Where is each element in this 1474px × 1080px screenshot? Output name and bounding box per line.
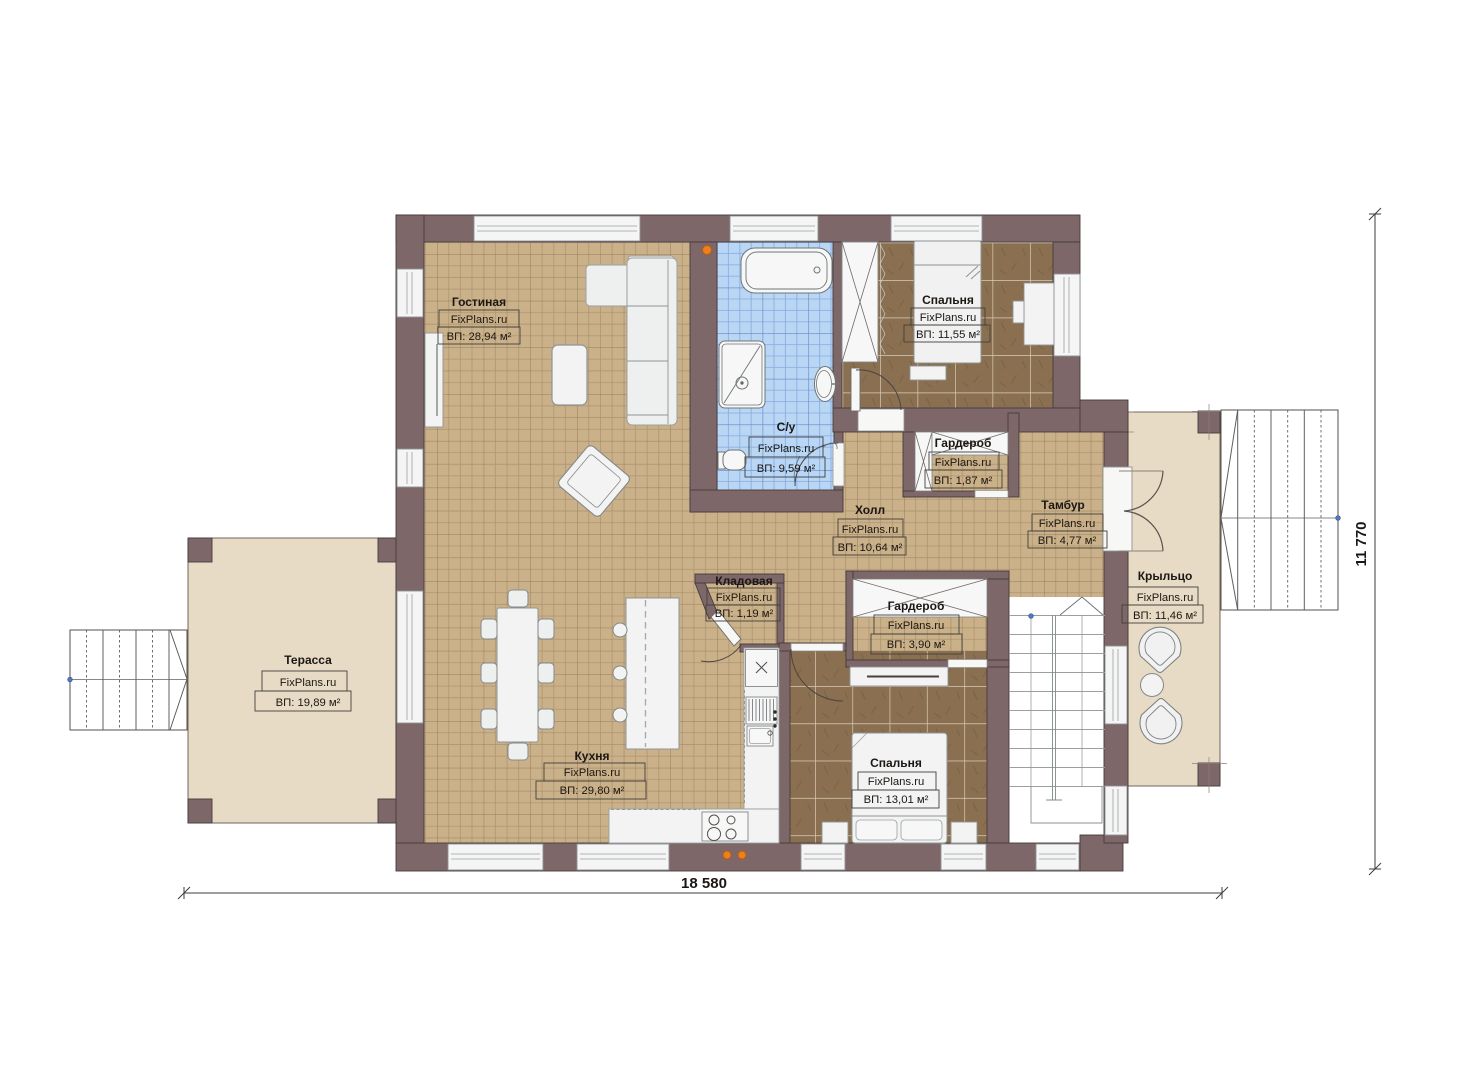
svg-text:Терасса: Терасса [284, 653, 332, 667]
svg-text:FixPlans.ru: FixPlans.ru [920, 312, 977, 324]
svg-text:FixPlans.ru: FixPlans.ru [716, 592, 773, 604]
svg-text:FixPlans.ru: FixPlans.ru [1137, 592, 1194, 604]
svg-text:FixPlans.ru: FixPlans.ru [868, 776, 925, 788]
svg-text:Гардероб: Гардероб [935, 436, 992, 450]
svg-text:FixPlans.ru: FixPlans.ru [1039, 518, 1096, 530]
svg-text:FixPlans.ru: FixPlans.ru [280, 677, 337, 689]
svg-text:Кладовая: Кладовая [715, 574, 772, 588]
svg-text:ВП: 13,01 м²: ВП: 13,01 м² [864, 794, 929, 806]
svg-text:Крыльцо: Крыльцо [1138, 569, 1193, 583]
svg-text:ВП: 1,19 м²: ВП: 1,19 м² [715, 608, 774, 620]
svg-text:ВП: 4,77 м²: ВП: 4,77 м² [1038, 535, 1097, 547]
svg-text:ВП: 19,89 м²: ВП: 19,89 м² [276, 697, 341, 709]
svg-text:FixPlans.ru: FixPlans.ru [564, 767, 621, 779]
svg-text:Кухня: Кухня [574, 749, 609, 763]
svg-text:FixPlans.ru: FixPlans.ru [842, 524, 899, 536]
svg-text:ВП: 1,87 м²: ВП: 1,87 м² [934, 475, 993, 487]
svg-text:FixPlans.ru: FixPlans.ru [888, 620, 945, 632]
svg-text:Гардероб: Гардероб [888, 599, 945, 613]
svg-text:ВП: 10,64 м²: ВП: 10,64 м² [838, 542, 903, 554]
svg-text:ВП: 3,90 м²: ВП: 3,90 м² [887, 639, 946, 651]
svg-text:ВП: 11,55 м²: ВП: 11,55 м² [916, 329, 980, 341]
svg-text:Спальня: Спальня [922, 293, 974, 307]
svg-text:ВП: 28,94 м²: ВП: 28,94 м² [447, 331, 512, 343]
svg-text:11 770: 11 770 [1353, 521, 1370, 566]
svg-text:ВП: 11,46 м²: ВП: 11,46 м² [1133, 610, 1197, 622]
svg-text:Холл: Холл [855, 503, 885, 517]
svg-text:С/у: С/у [777, 420, 796, 434]
svg-text:Тамбур: Тамбур [1041, 498, 1085, 512]
svg-text:18 580: 18 580 [681, 875, 727, 892]
svg-text:ВП: 9,59 м²: ВП: 9,59 м² [757, 463, 816, 475]
svg-text:ВП: 29,80 м²: ВП: 29,80 м² [560, 785, 625, 797]
svg-text:Спальня: Спальня [870, 756, 922, 770]
svg-text:Гостиная: Гостиная [452, 295, 506, 309]
svg-text:FixPlans.ru: FixPlans.ru [758, 443, 815, 455]
svg-text:FixPlans.ru: FixPlans.ru [451, 314, 508, 326]
svg-text:FixPlans.ru: FixPlans.ru [935, 457, 992, 469]
